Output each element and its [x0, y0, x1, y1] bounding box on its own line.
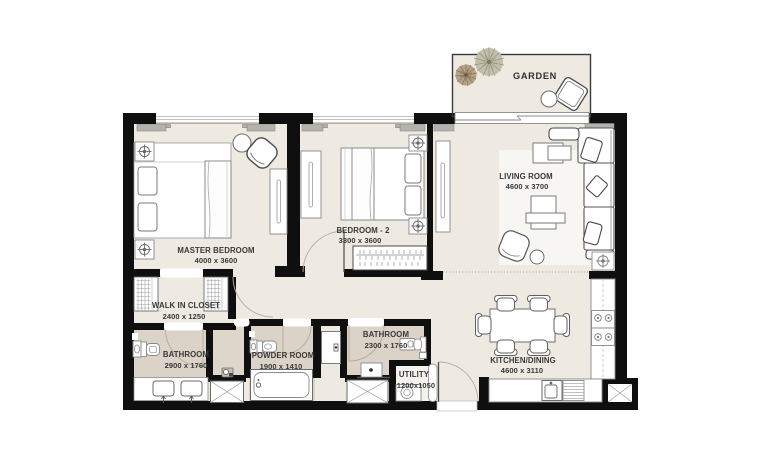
svg-text:BATHROOM: BATHROOM [363, 330, 409, 339]
svg-text:4600 x 3110: 4600 x 3110 [501, 366, 543, 375]
svg-text:4600 x 3700: 4600 x 3700 [506, 182, 549, 191]
svg-text:KITCHEN/DINING: KITCHEN/DINING [490, 356, 556, 365]
svg-text:2300 x 1760: 2300 x 1760 [365, 341, 408, 350]
svg-text:LIVING ROOM: LIVING ROOM [499, 172, 553, 181]
svg-text:MASTER BEDROOM: MASTER BEDROOM [177, 246, 254, 255]
svg-text:GARDEN: GARDEN [513, 71, 557, 81]
svg-text:1200x1050: 1200x1050 [397, 381, 435, 390]
svg-text:WALK IN CLOSET: WALK IN CLOSET [152, 301, 220, 310]
svg-text:BATHROOM: BATHROOM [163, 350, 209, 359]
svg-text:1900 x 1410: 1900 x 1410 [260, 362, 303, 371]
svg-text:POWDER ROOM: POWDER ROOM [252, 351, 315, 360]
svg-text:2900 x 1760: 2900 x 1760 [165, 361, 208, 370]
svg-text:2400 x 1250: 2400 x 1250 [163, 312, 206, 321]
svg-text:4000 x 3600: 4000 x 3600 [195, 256, 238, 265]
svg-text:BEDROOM - 2: BEDROOM - 2 [336, 226, 390, 235]
svg-text:3300 x 3600: 3300 x 3600 [339, 236, 382, 245]
svg-text:UTILITY: UTILITY [399, 370, 430, 379]
